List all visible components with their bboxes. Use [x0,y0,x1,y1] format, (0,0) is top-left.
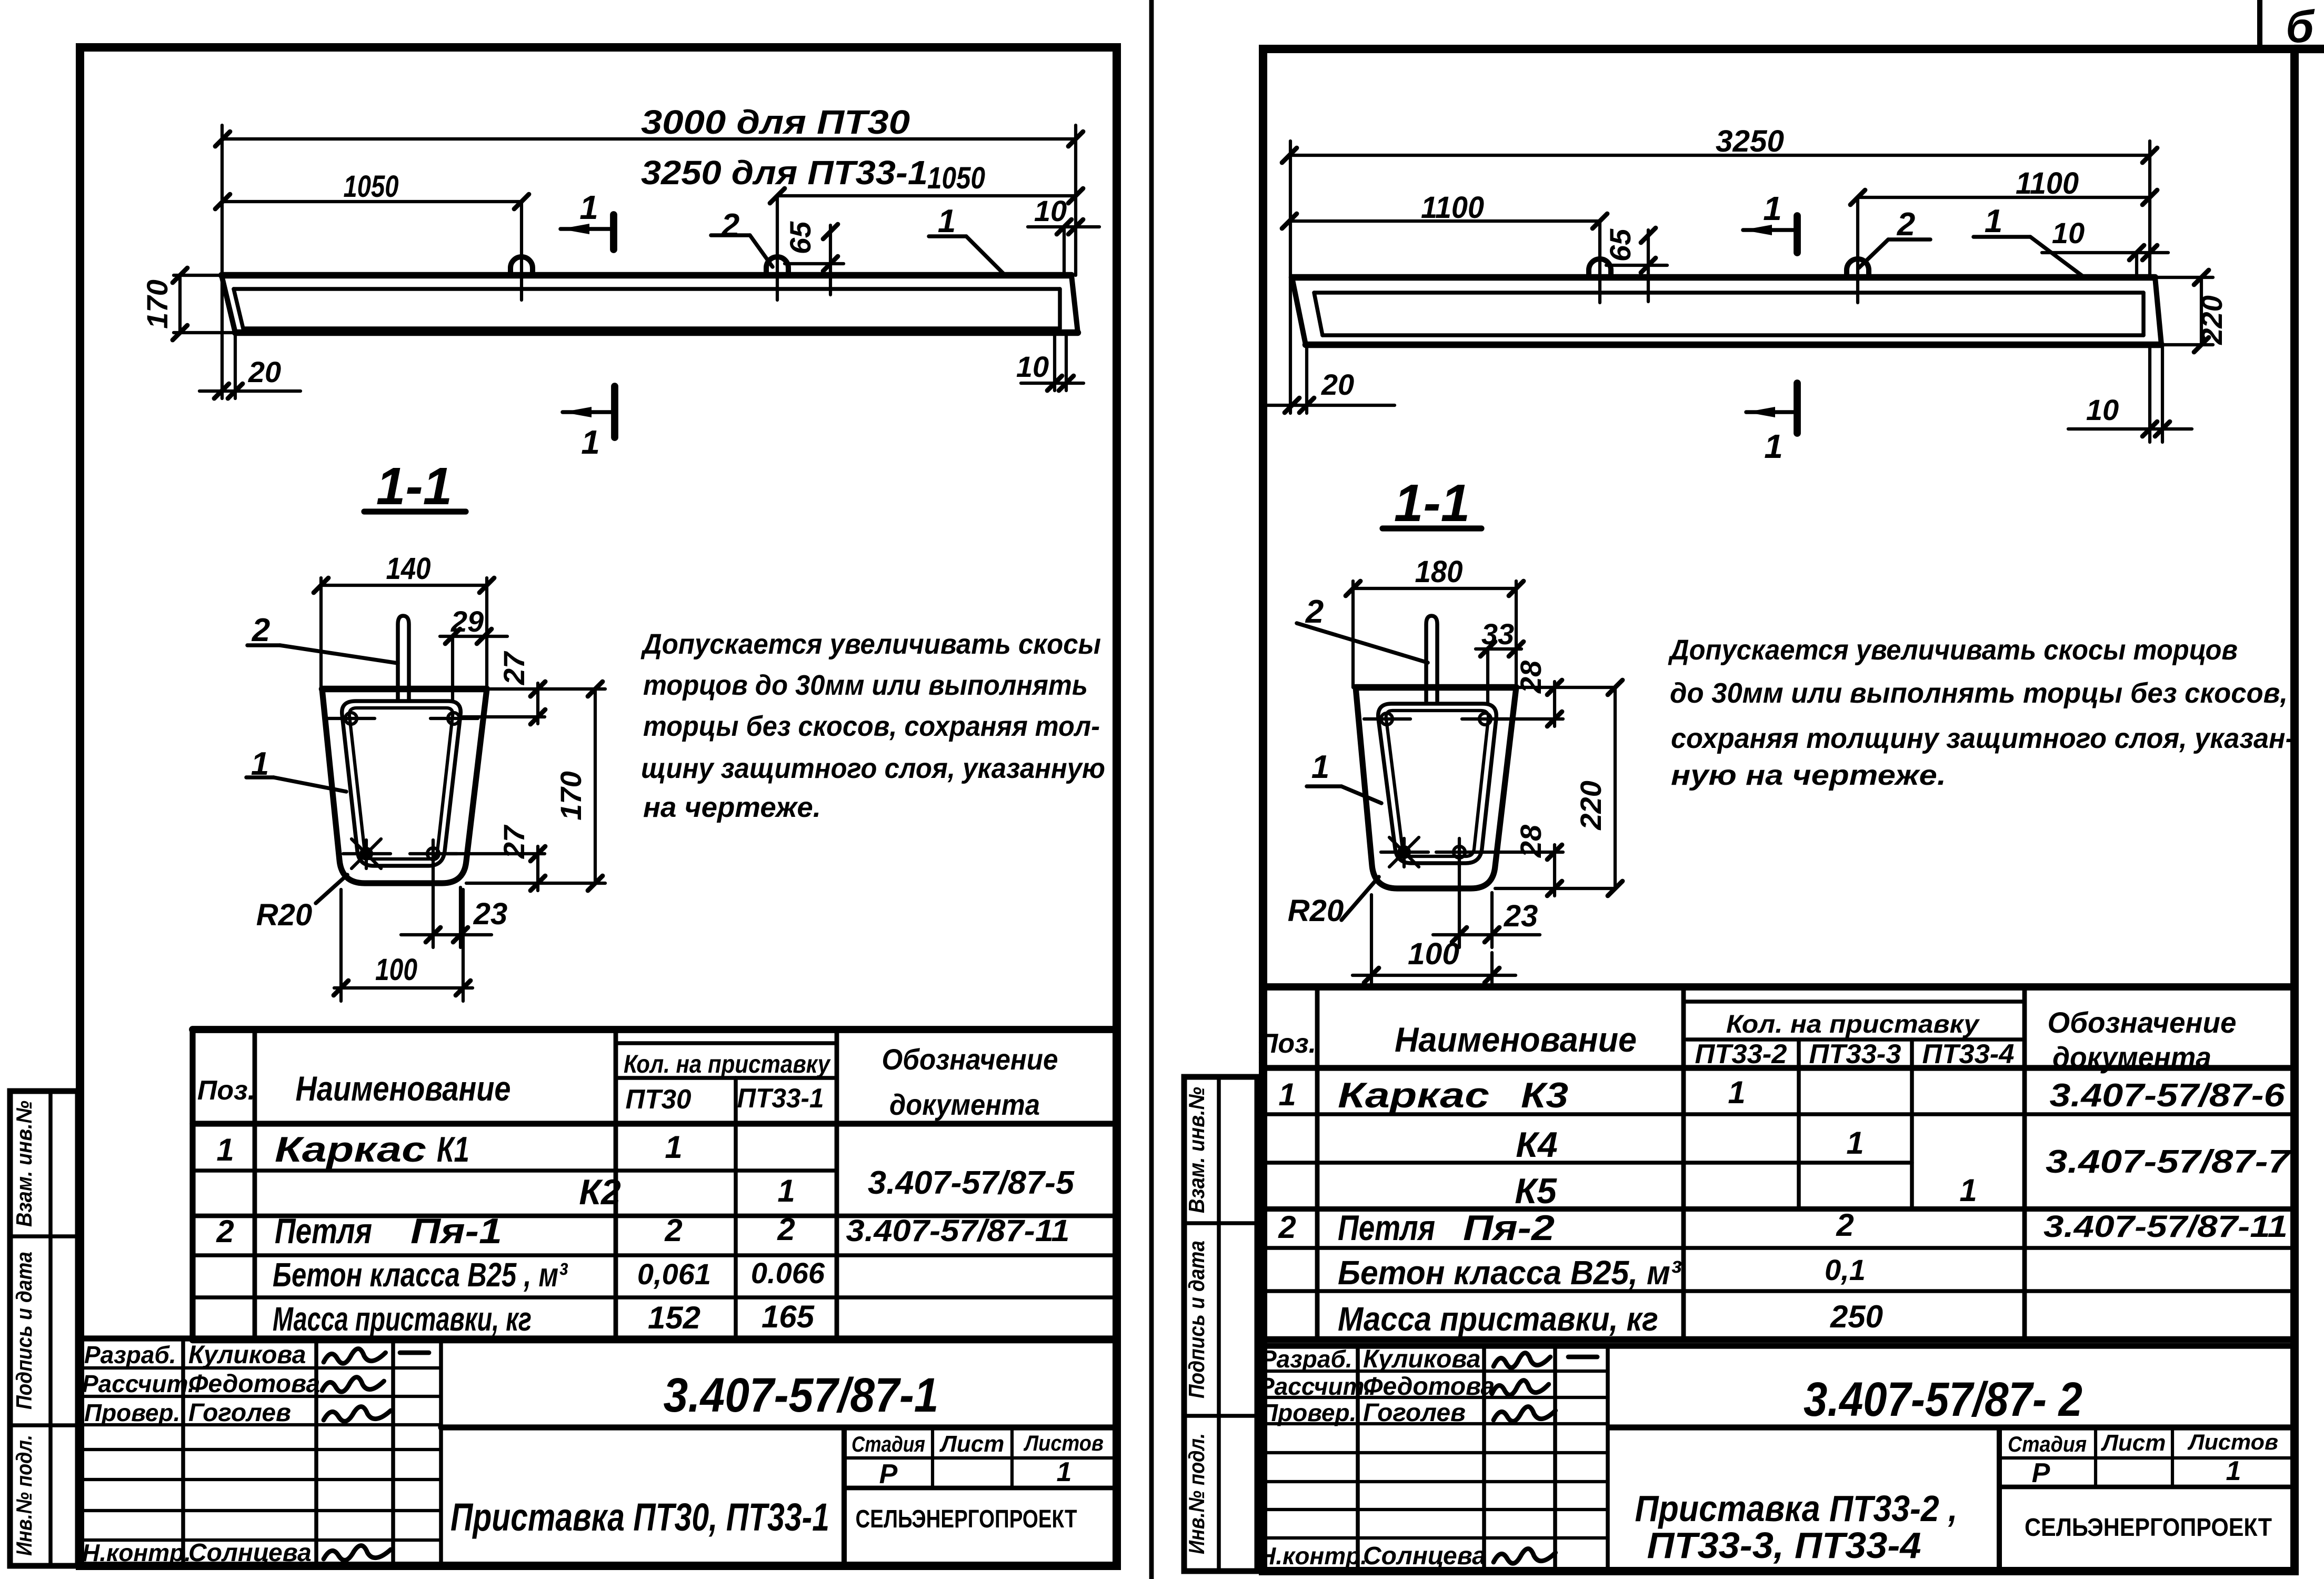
svg-text:1: 1 [777,1173,795,1208]
svg-text:Н.контр.: Н.контр. [1258,1542,1367,1570]
svg-text:Куликова: Куликова [188,1341,306,1369]
svg-text:Рассчит.: Рассчит. [82,1370,195,1397]
svg-text:10: 10 [2052,216,2085,249]
svg-text:100: 100 [375,953,417,987]
svg-text:3250: 3250 [1716,124,1784,158]
svg-text:Масса приставки, кг: Масса приставки, кг [1338,1300,1658,1338]
svg-text:1: 1 [1728,1075,1745,1110]
svg-text:2: 2 [1897,206,1915,243]
svg-text:Федотова: Федотова [1363,1373,1495,1401]
svg-text:Р: Р [879,1459,898,1490]
svg-text:Рассчит.: Рассчит. [1258,1373,1371,1400]
svg-text:3.407-57/87-6: 3.407-57/87-6 [2050,1077,2286,1114]
svg-text:65: 65 [784,221,817,254]
svg-text:65: 65 [1604,228,1637,262]
svg-text:2: 2 [1278,1210,1296,1245]
svg-text:Инв.№ подл.: Инв.№ подл. [12,1435,36,1556]
svg-text:СЕЛЬЭНЕРГОПРОЕКТ: СЕЛЬЭНЕРГОПРОЕКТ [2025,1514,2272,1542]
svg-text:10: 10 [2086,393,2119,426]
svg-text:1: 1 [1311,749,1329,785]
svg-text:Лист: Лист [939,1431,1005,1457]
svg-text:Провер.: Провер. [84,1399,180,1426]
svg-text:250: 250 [1830,1299,1883,1334]
svg-text:10: 10 [1016,350,1049,383]
svg-text:220: 220 [1574,781,1607,830]
svg-text:Разраб.: Разраб. [1260,1345,1353,1373]
svg-text:К1: К1 [437,1130,469,1170]
svg-text:29: 29 [450,605,484,638]
svg-text:1: 1 [1985,203,2002,239]
svg-text:20: 20 [1321,368,1354,401]
svg-text:Приставка ПТ33-2 ,: Приставка ПТ33-2 , [1635,1488,1958,1529]
svg-text:1: 1 [216,1132,234,1167]
svg-text:0.066: 0.066 [751,1256,825,1290]
svg-text:27: 27 [497,651,530,685]
svg-text:3.407-57/87-11: 3.407-57/87-11 [846,1214,1070,1248]
svg-text:170: 170 [554,771,587,820]
svg-text:Лист: Лист [2101,1430,2166,1456]
svg-text:3.407-57/87-7: 3.407-57/87-7 [2046,1144,2291,1180]
svg-text:3250 для ПТ33-1: 3250 для ПТ33-1 [641,154,928,192]
svg-text:3.407-57/87-5: 3.407-57/87-5 [868,1165,1075,1201]
svg-text:23: 23 [473,897,508,931]
svg-text:Гоголев: Гоголев [188,1399,291,1427]
svg-text:Р: Р [2032,1458,2050,1488]
svg-text:R20: R20 [1288,894,1344,928]
svg-text:2: 2 [252,612,270,648]
svg-text:Наименование: Наименование [296,1069,511,1108]
svg-text:на чертеже.: на чертеже. [643,792,821,823]
svg-text:Подпись и дата: Подпись и дата [12,1252,36,1410]
svg-text:33: 33 [1481,617,1514,651]
svg-text:ПТ33-1: ПТ33-1 [737,1083,824,1114]
svg-text:2: 2 [777,1212,795,1247]
svg-text:1-1: 1-1 [1394,474,1470,533]
svg-text:220: 220 [2195,295,2228,345]
svg-text:10: 10 [1034,194,1067,227]
svg-text:б: б [2286,2,2315,52]
svg-text:1: 1 [665,1130,682,1165]
svg-text:Петля: Петля [275,1211,372,1251]
svg-text:1: 1 [581,423,600,461]
svg-text:Инв.№ подл.: Инв.№ подл. [1184,1433,1209,1554]
svg-text:документа: документа [2052,1041,2211,1074]
svg-text:Взам. инв.№: Взам. инв.№ [1184,1087,1209,1213]
svg-text:28: 28 [1514,660,1547,694]
svg-text:Кол. на приставку: Кол. на приставку [624,1051,831,1078]
svg-text:Стадия: Стадия [2008,1432,2087,1456]
svg-text:140: 140 [386,552,431,586]
svg-text:100: 100 [1408,937,1459,971]
svg-text:Н.контр.: Н.контр. [82,1539,191,1566]
svg-text:до 30мм или выполнять торцы: до 30мм или выполнять торцы без скосов, [1670,677,2288,709]
svg-text:3000 для ПТ30: 3000 для ПТ30 [641,103,910,141]
svg-text:ПТ30: ПТ30 [626,1084,692,1115]
svg-text:1: 1 [2226,1456,2241,1486]
svg-text:27: 27 [497,824,530,859]
svg-text:Приставка ПТ30, ПТ33-1: Приставка ПТ30, ПТ33-1 [450,1495,829,1539]
svg-text:Пя-2: Пя-2 [1463,1208,1555,1248]
svg-text:сохраняя толщину защитного: сохраняя толщину защитного слоя, указан- [1671,723,2295,754]
svg-text:Петля: Петля [1338,1208,1435,1248]
svg-text:2: 2 [721,207,739,244]
svg-text:170: 170 [141,279,174,328]
svg-text:Бетон класса В25 , м³: Бетон класса В25 , м³ [273,1256,568,1294]
svg-text:Поз.: Поз. [1258,1028,1316,1059]
svg-text:Разраб.: Разраб. [84,1341,176,1368]
svg-text:2: 2 [664,1213,682,1248]
svg-text:R20: R20 [256,898,312,932]
svg-text:Солнцева: Солнцева [1363,1542,1486,1570]
svg-text:1: 1 [1846,1125,1864,1161]
svg-text:ную на чертеже.: ную на чертеже. [1671,759,1946,791]
svg-text:20: 20 [248,355,281,388]
svg-text:2: 2 [216,1214,234,1249]
svg-text:165: 165 [762,1299,815,1334]
svg-text:ПТ33-3, ПТ33-4: ПТ33-3, ПТ33-4 [1647,1525,1921,1566]
svg-text:К2: К2 [579,1172,621,1212]
svg-text:Гоголев: Гоголев [1363,1399,1466,1427]
svg-text:Куликова: Куликова [1363,1345,1480,1373]
svg-text:ПТ33-3: ПТ33-3 [1809,1039,1901,1070]
svg-text:К5: К5 [1515,1171,1557,1211]
svg-text:3.407-57/87-1: 3.407-57/87-1 [664,1368,939,1422]
svg-text:28: 28 [1514,824,1547,858]
svg-text:1100: 1100 [2016,166,2079,201]
svg-text:Бетон класса В25, м³: Бетон класса В25, м³ [1338,1254,1682,1292]
svg-text:1: 1 [1278,1077,1296,1112]
svg-text:Листов: Листов [2187,1430,2278,1454]
svg-text:1: 1 [1764,427,1783,465]
svg-text:Листов: Листов [1023,1431,1104,1455]
svg-text:щину защитного слоя, указан: щину защитного слоя, указанную [641,753,1105,784]
svg-text:1: 1 [1763,189,1782,227]
svg-text:1050: 1050 [927,161,985,195]
svg-text:Федотова: Федотова [188,1370,320,1398]
svg-text:1: 1 [938,203,956,239]
svg-text:Поз.: Поз. [197,1075,255,1106]
svg-text:Обозначение: Обозначение [2048,1006,2237,1039]
svg-text:торцов до 30мм или выполня: торцов до 30мм или выполнять [643,669,1088,701]
svg-text:3.407-57/87- 2: 3.407-57/87- 2 [1804,1373,2082,1426]
svg-text:К4: К4 [1516,1125,1558,1165]
svg-text:К3: К3 [1521,1075,1568,1115]
svg-text:1-1: 1-1 [376,457,453,516]
svg-text:1: 1 [1057,1457,1072,1487]
svg-text:Подпись и дата: Подпись и дата [1184,1241,1209,1398]
svg-text:Пя-1: Пя-1 [410,1211,502,1251]
svg-text:Допускается увеличивать скос: Допускается увеличивать скосы [640,628,1101,660]
svg-text:1: 1 [579,188,598,226]
svg-text:Обозначение: Обозначение [882,1043,1058,1076]
svg-text:торцы без скосов, сохраняя: торцы без скосов, сохраняя тол- [643,711,1100,742]
svg-text:1: 1 [1959,1173,1977,1208]
svg-text:180: 180 [1415,555,1463,589]
svg-text:Каркас: Каркас [1338,1075,1489,1115]
svg-text:Масса приставки, кг: Масса приставки, кг [273,1300,532,1338]
svg-text:Наименование: Наименование [1395,1020,1637,1059]
svg-text:Взам. инв.№: Взам. инв.№ [12,1101,36,1227]
svg-text:Провер.: Провер. [1260,1399,1356,1426]
svg-text:Кол. на приставку: Кол. на приставку [1726,1011,1980,1038]
svg-text:23: 23 [1504,899,1538,933]
svg-text:1050: 1050 [344,169,399,204]
svg-text:0,1: 0,1 [1825,1253,1866,1286]
svg-text:1100: 1100 [1421,191,1484,225]
svg-text:СЕЛЬЭНЕРГОПРОЕКТ: СЕЛЬЭНЕРГОПРОЕКТ [856,1505,1077,1533]
svg-text:Солнцева: Солнцева [188,1539,312,1567]
svg-text:Допускается увеличивать скос: Допускается увеличивать скосы торцов [1668,634,2238,666]
svg-text:0,061: 0,061 [637,1257,711,1291]
svg-text:документа: документа [889,1088,1040,1121]
svg-text:ПТ33-2: ПТ33-2 [1695,1039,1787,1070]
svg-text:152: 152 [648,1300,700,1335]
svg-text:3.407-57/87-11: 3.407-57/87-11 [2043,1210,2288,1244]
svg-text:Стадия: Стадия [852,1432,925,1456]
svg-text:ПТ33-4: ПТ33-4 [1922,1039,2015,1070]
svg-text:2: 2 [1836,1207,1854,1243]
svg-text:Каркас: Каркас [275,1130,426,1170]
